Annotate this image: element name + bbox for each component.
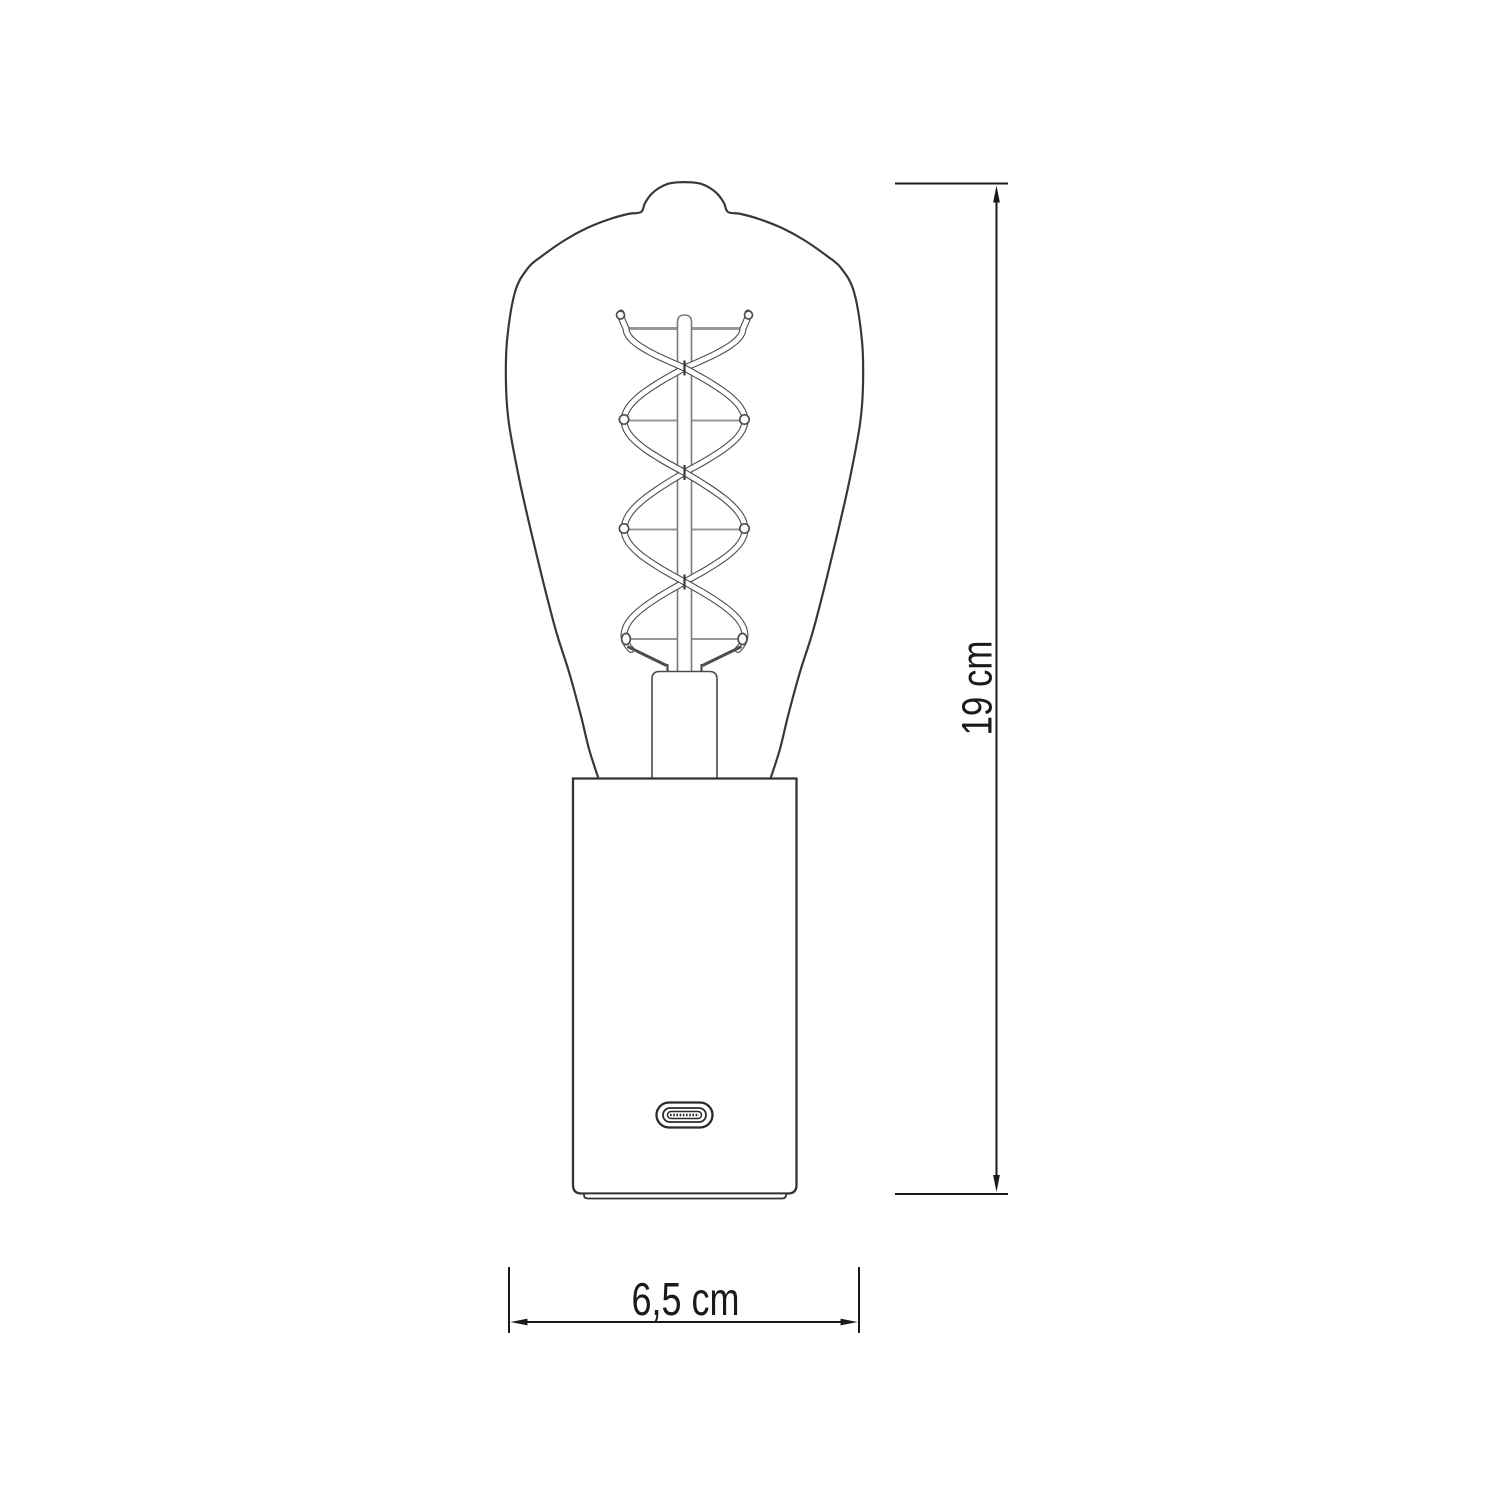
svg-text:19 cm: 19 cm — [954, 641, 1002, 736]
svg-text:6,5 cm: 6,5 cm — [632, 1273, 740, 1325]
